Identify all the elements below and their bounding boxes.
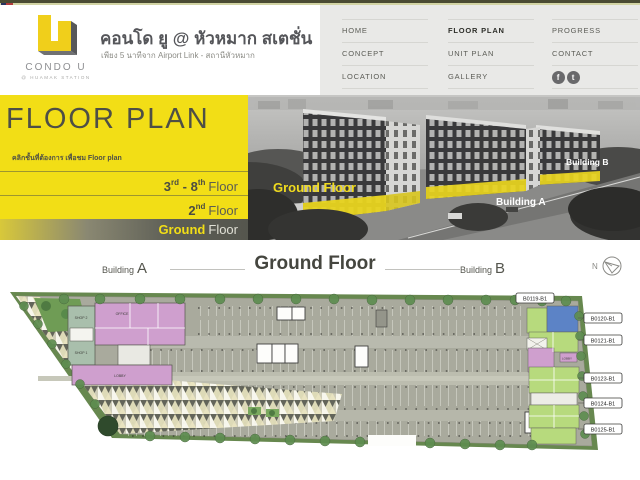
compass-n-label: N xyxy=(592,262,598,271)
lobby-b-label: LOBBY xyxy=(562,357,572,361)
nav-column-1: HOME CONCEPT LOCATION xyxy=(342,19,428,89)
floor-word: Floor xyxy=(208,203,238,218)
floor-item-2nd[interactable]: 2ndFloor xyxy=(0,195,248,219)
logo-tagline: @ HUAMAK STATION xyxy=(14,75,98,80)
nav-item-progress[interactable]: PROGRESS xyxy=(552,19,638,42)
floor-selector-list: 3rd - 8thFloor 2ndFloor GroundFloor xyxy=(0,171,248,241)
condo-u-logo-icon[interactable] xyxy=(36,13,80,64)
floor-sup: th xyxy=(198,178,206,187)
building-word: Building xyxy=(102,265,134,275)
floor-plan-instruction: คลิกชั้นที่ต้องการ เพื่อชม Floor plan xyxy=(12,153,122,164)
unit-label-pill[interactable]: B0124-B1 xyxy=(578,398,622,408)
facebook-icon[interactable]: f xyxy=(552,71,565,84)
floor-word: Floor xyxy=(208,179,238,194)
header-divider-line xyxy=(385,269,460,270)
plan-title: Ground Floor xyxy=(250,253,380,275)
nav-column-3: PROGRESS CONTACT f t xyxy=(552,19,638,89)
plan-building-b-label[interactable]: BuildingB xyxy=(460,260,505,277)
page-title: คอนโด ยู @ หัวหมาก สเตชั่น xyxy=(100,25,312,52)
hero-building-a-label: Building A xyxy=(496,197,546,208)
plan-header-row: BuildingA Ground Floor BuildingB N xyxy=(0,240,640,288)
floor-sep: - xyxy=(179,179,191,194)
unit-label-pill[interactable]: B0120-B1 xyxy=(578,313,622,323)
building-word: Building xyxy=(460,265,492,275)
nav-item-location[interactable]: LOCATION xyxy=(342,65,428,89)
shop2-label: SHOP 2 xyxy=(75,316,88,320)
unit-label-pill[interactable]: B0123-B1 xyxy=(578,373,622,383)
plan-shops-block: SHOP 2 SHOP 1 xyxy=(68,306,95,365)
floor-ground-word: Floor xyxy=(208,222,238,237)
plan-building-a-label[interactable]: BuildingA xyxy=(102,260,147,277)
svg-text:B0120-B1: B0120-B1 xyxy=(591,316,615,322)
ground-floor-plan: SHOP 2 SHOP 1 OFFICE LOBBY xyxy=(0,288,640,456)
header-divider-line xyxy=(170,269,245,270)
svg-text:B0125-B1: B0125-B1 xyxy=(591,427,615,433)
nav-item-unit-plan[interactable]: UNIT PLAN xyxy=(448,42,534,65)
unit-label-pill[interactable]: B0125-B1 xyxy=(578,424,622,434)
plan-unit-column: LOBBY xyxy=(527,306,579,444)
building-letter: B xyxy=(495,260,505,277)
hero-ground-floor-label: Ground Floor xyxy=(273,180,356,195)
hero-building-a-rear-block xyxy=(426,115,540,199)
nav-column-2: FLOOR PLAN UNIT PLAN GALLERY xyxy=(448,19,534,89)
floor-sup: nd xyxy=(196,202,206,211)
office-label: OFFICE xyxy=(116,312,129,316)
hero-building-b-block xyxy=(536,125,600,185)
plan-entrance-gap xyxy=(368,435,416,446)
hero-building-image: Ground Floor Building A Building B xyxy=(248,95,640,240)
building-letter: A xyxy=(137,260,147,277)
lobby-label: LOBBY xyxy=(114,374,126,378)
plan-large-tree xyxy=(98,416,118,436)
unit-label-pill[interactable]: B0119-B1 xyxy=(516,293,554,303)
floor-num: 2 xyxy=(188,203,195,218)
social-links-row: f t xyxy=(552,65,638,89)
floor-item-3rd-8th[interactable]: 3rd - 8thFloor xyxy=(0,171,248,195)
svg-text:B0123-B1: B0123-B1 xyxy=(591,376,615,382)
floor-plan-panel: FLOOR PLAN คลิกชั้นที่ต้องการ เพื่อชม Fl… xyxy=(0,95,248,240)
floor-sup: rd xyxy=(171,178,179,187)
nav-item-contact[interactable]: CONTACT xyxy=(552,42,638,65)
nav-item-gallery[interactable]: GALLERY xyxy=(448,65,534,89)
floor-num: 3 xyxy=(164,179,171,194)
page-subtitle: เพียง 5 นาทีจาก Airport Link - สถานีหัวห… xyxy=(101,49,255,62)
nav-item-floor-plan[interactable]: FLOOR PLAN xyxy=(448,19,534,42)
floor-ground-bold: Ground xyxy=(158,222,205,237)
shop1-label: SHOP 1 xyxy=(75,351,88,355)
site-header: CONDO U @ HUAMAK STATION คอนโด ยู @ หัวห… xyxy=(0,5,320,95)
hero-building-b-label: Building B xyxy=(566,157,609,167)
twitter-icon[interactable]: t xyxy=(567,71,580,84)
north-compass: N xyxy=(592,254,624,278)
svg-text:B0121-B1: B0121-B1 xyxy=(591,338,615,344)
nav-item-home[interactable]: HOME xyxy=(342,19,428,42)
compass-icon xyxy=(600,254,624,278)
floor-plan-panel-title: FLOOR PLAN xyxy=(6,103,210,136)
svg-text:B0119-B1: B0119-B1 xyxy=(523,296,547,302)
unit-label-pill[interactable]: B0121-B1 xyxy=(578,335,622,345)
nav-item-concept[interactable]: CONCEPT xyxy=(342,42,428,65)
floor-num: 8 xyxy=(191,179,198,194)
logo-wordmark[interactable]: CONDO U xyxy=(14,62,98,73)
svg-text:B0124-B1: B0124-B1 xyxy=(591,401,615,407)
floor-item-ground-active[interactable]: GroundFloor xyxy=(0,219,248,241)
main-nav: HOME CONCEPT LOCATION FLOOR PLAN UNIT PL… xyxy=(320,5,640,95)
hero-city-skyline xyxy=(248,97,640,110)
